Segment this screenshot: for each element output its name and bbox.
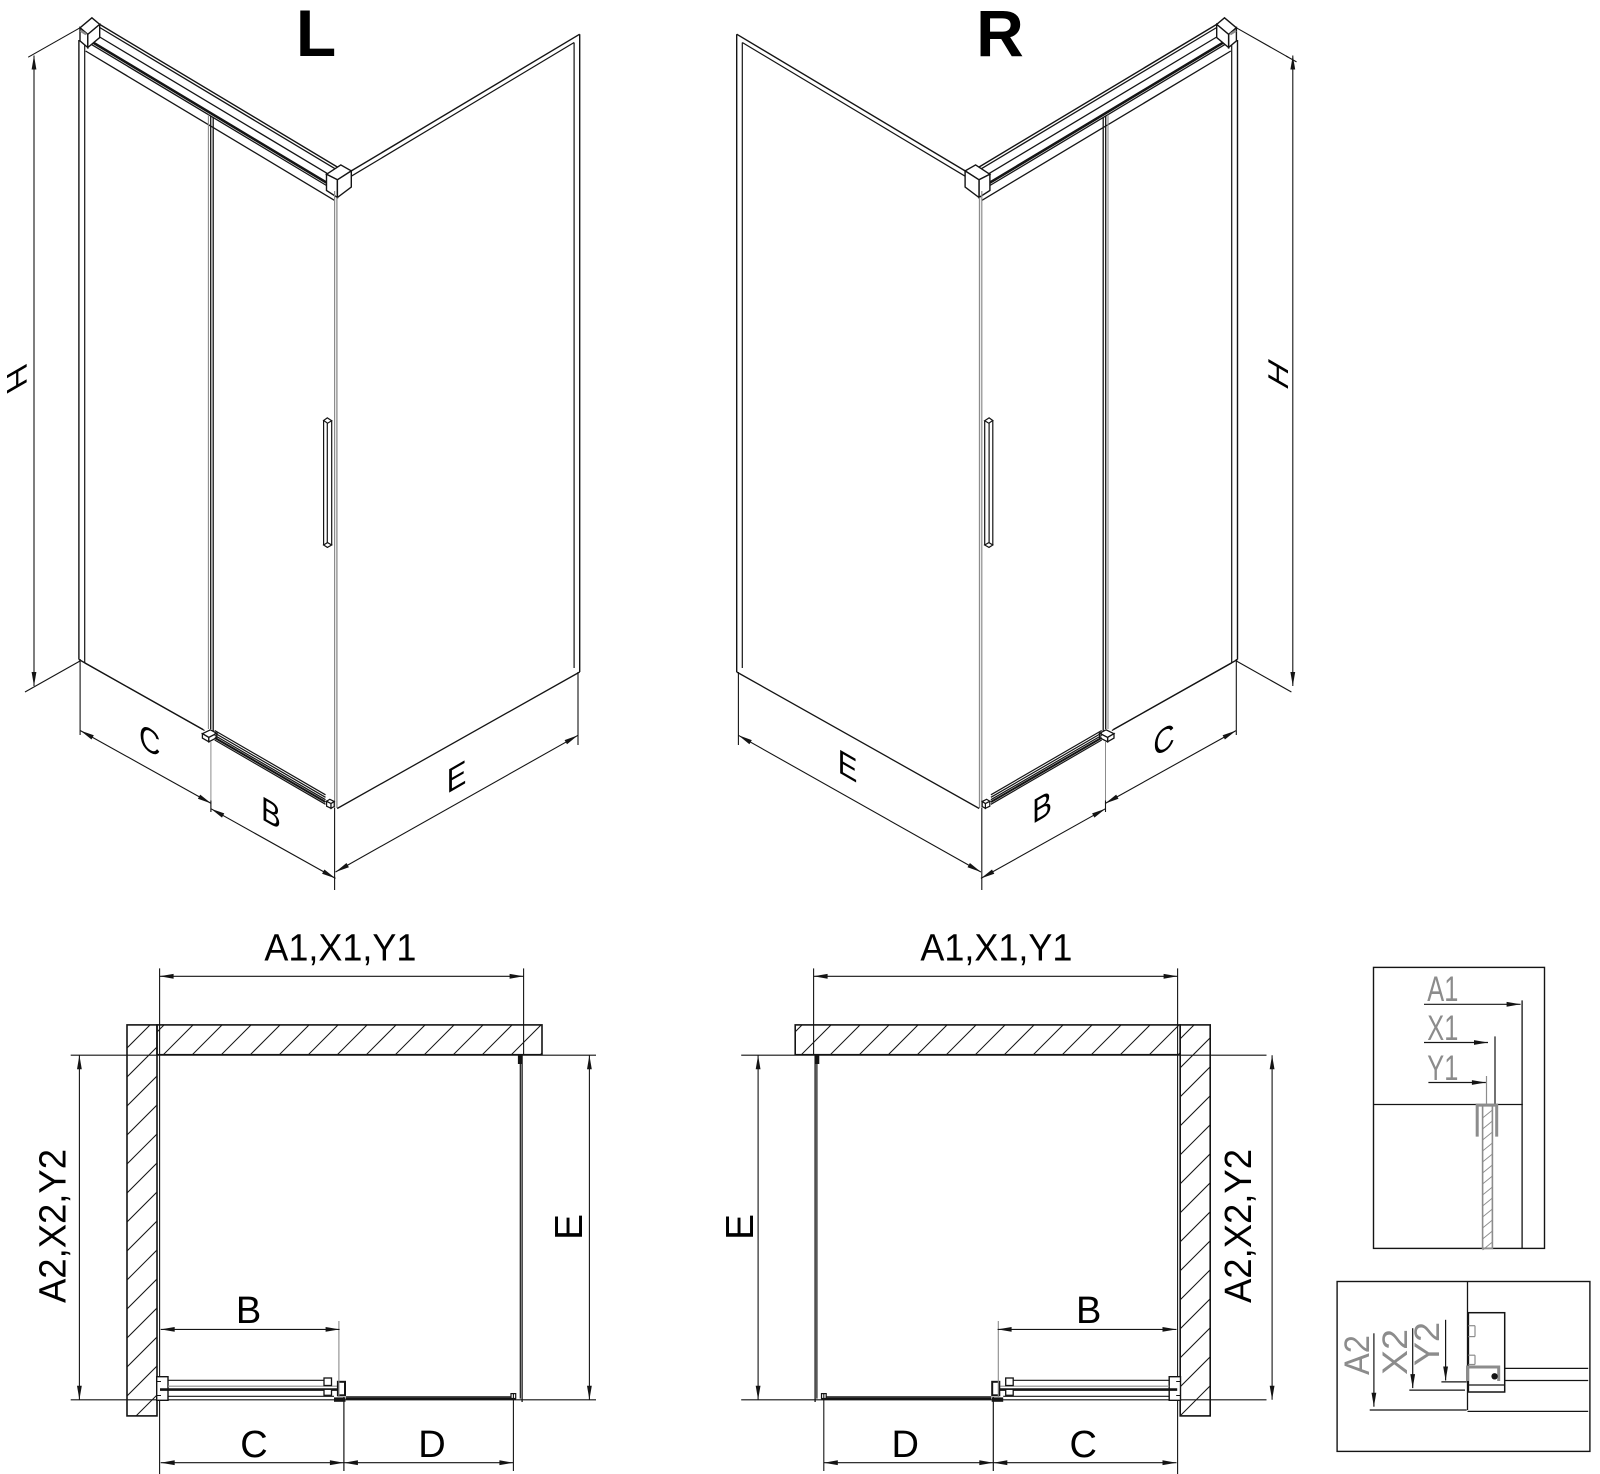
- svg-text:C: C: [240, 1424, 267, 1466]
- svg-text:Y1: Y1: [1427, 1049, 1458, 1088]
- svg-text:B: B: [1032, 783, 1052, 832]
- svg-text:A1,X1,Y1: A1,X1,Y1: [264, 928, 416, 970]
- svg-text:R: R: [976, 0, 1024, 70]
- svg-text:H: H: [1, 357, 33, 399]
- svg-text:B: B: [236, 1290, 261, 1332]
- svg-text:E: E: [719, 1214, 762, 1240]
- svg-text:Y2: Y2: [1408, 1322, 1447, 1366]
- svg-text:A1,X1,Y1: A1,X1,Y1: [920, 928, 1072, 970]
- svg-text:X1: X1: [1427, 1009, 1458, 1048]
- svg-text:C: C: [139, 716, 160, 766]
- svg-text:E: E: [838, 742, 858, 791]
- svg-text:H: H: [1262, 353, 1294, 395]
- svg-text:B: B: [1076, 1290, 1101, 1332]
- svg-text:B: B: [261, 789, 281, 838]
- svg-text:C: C: [1069, 1424, 1096, 1466]
- svg-text:A2: A2: [1338, 1335, 1377, 1375]
- svg-text:E: E: [548, 1214, 591, 1240]
- svg-text:A2,X2,Y2: A2,X2,Y2: [1218, 1149, 1260, 1303]
- svg-text:A2,X2,Y2: A2,X2,Y2: [33, 1149, 75, 1303]
- svg-text:D: D: [891, 1424, 918, 1466]
- svg-text:D: D: [418, 1424, 445, 1466]
- svg-text:A1: A1: [1427, 970, 1458, 1009]
- svg-text:L: L: [296, 0, 336, 70]
- svg-text:E: E: [447, 753, 467, 802]
- svg-text:C: C: [1153, 715, 1174, 765]
